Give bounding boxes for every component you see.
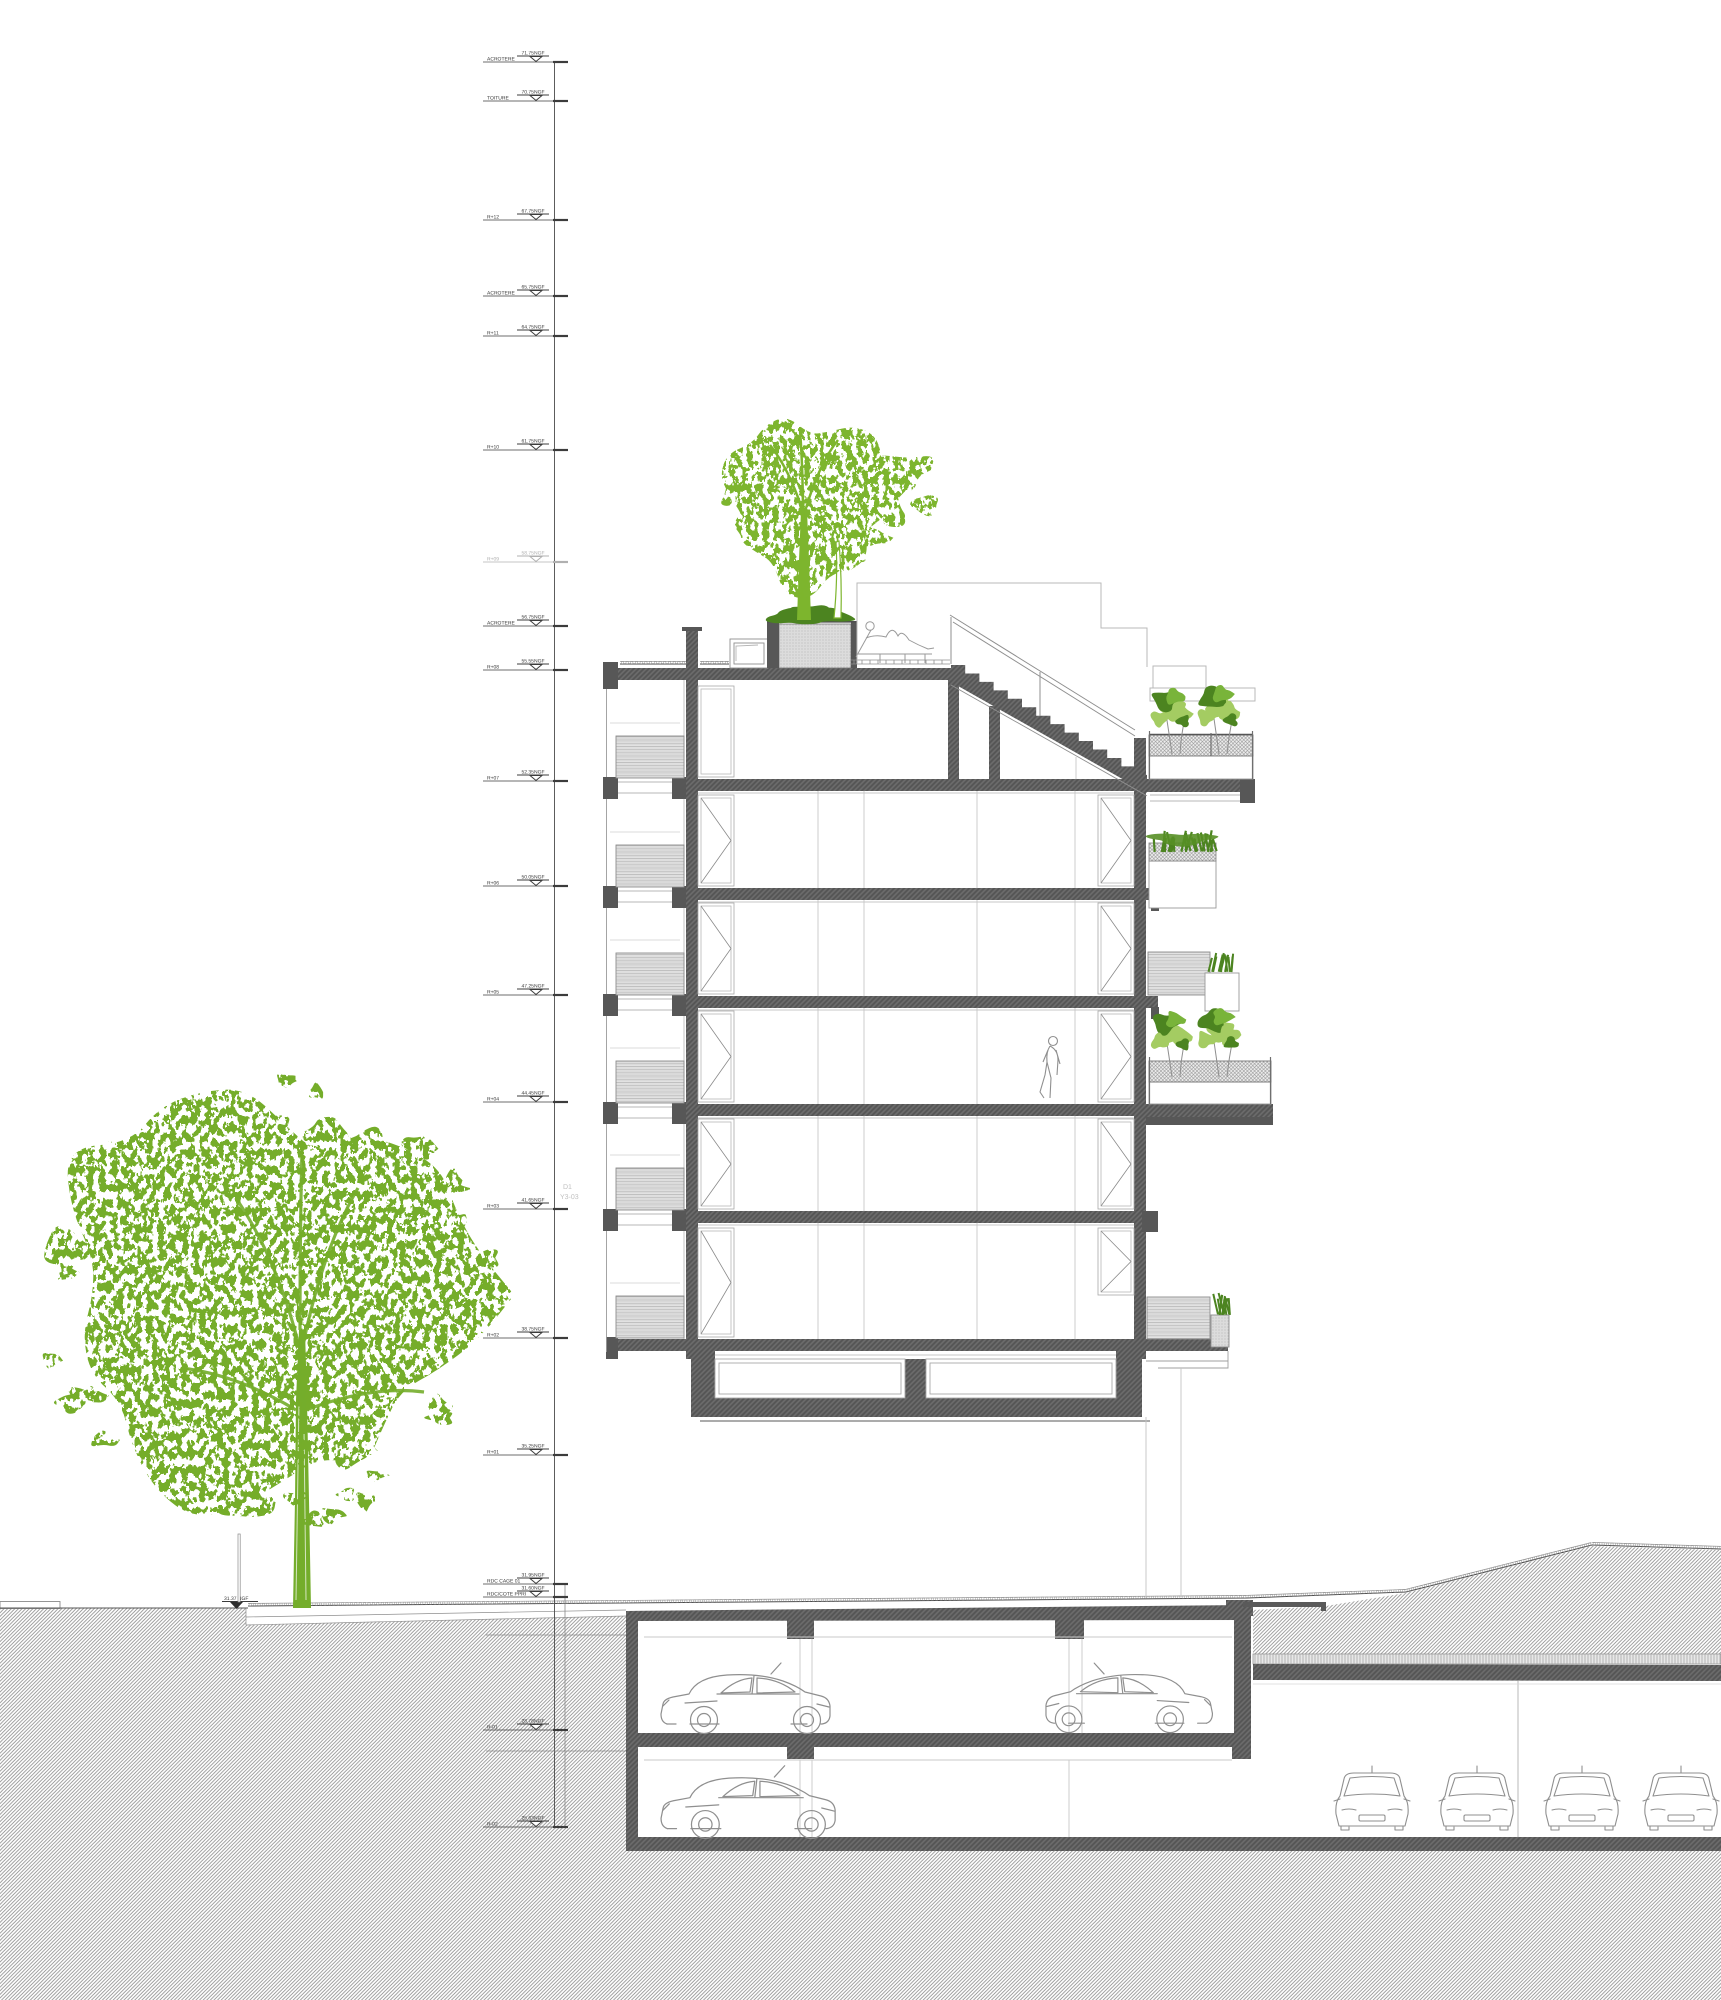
svg-text:R+06: R+06 — [487, 881, 499, 887]
svg-text:RDC CAGE 01: RDC CAGE 01 — [487, 1579, 521, 1585]
svg-text:R+09: R+09 — [487, 557, 499, 563]
svg-text:47.25NGF: 47.25NGF — [521, 984, 544, 990]
svg-text:R+01: R+01 — [487, 1450, 499, 1456]
svg-text:R-01: R-01 — [487, 1725, 498, 1731]
svg-text:R-02: R-02 — [487, 1822, 498, 1828]
svg-text:67.75NGF: 67.75NGF — [521, 209, 544, 215]
svg-text:ACROTERE: ACROTERE — [487, 57, 515, 63]
svg-text:71.75NGF: 71.75NGF — [521, 51, 544, 57]
svg-text:61.75NGF: 61.75NGF — [521, 439, 544, 445]
svg-text:RDC/COTE PPRI: RDC/COTE PPRI — [487, 1592, 526, 1598]
svg-text:R+05: R+05 — [487, 990, 499, 996]
svg-text:R+12: R+12 — [487, 215, 499, 221]
svg-text:R+10: R+10 — [487, 445, 499, 451]
svg-text:44.45NGF: 44.45NGF — [521, 1091, 544, 1097]
svg-text:31.60NGF: 31.60NGF — [521, 1586, 544, 1592]
svg-text:R+03: R+03 — [487, 1204, 499, 1210]
svg-text:R+02: R+02 — [487, 1333, 499, 1339]
svg-text:56.75NGF: 56.75NGF — [521, 615, 544, 621]
svg-text:38.75NGF: 38.75NGF — [521, 1327, 544, 1333]
svg-text:R+11: R+11 — [487, 331, 499, 337]
svg-text:50.05NGF: 50.05NGF — [521, 875, 544, 881]
svg-text:52.35NGF: 52.35NGF — [521, 770, 544, 776]
svg-text:R+07: R+07 — [487, 776, 499, 782]
svg-text:64.75NGF: 64.75NGF — [521, 325, 544, 331]
svg-text:28.78NGF: 28.78NGF — [521, 1719, 544, 1725]
svg-text:41.65NGF: 41.65NGF — [521, 1198, 544, 1204]
svg-text:Y3-03: Y3-03 — [560, 1194, 579, 1201]
svg-text:ACROTERE: ACROTERE — [487, 621, 515, 627]
svg-text:R+08: R+08 — [487, 665, 499, 671]
svg-text:D1: D1 — [563, 1184, 572, 1191]
svg-text:35.25NGF: 35.25NGF — [521, 1444, 544, 1450]
svg-text:R+04: R+04 — [487, 1097, 499, 1103]
svg-text:70.75NGF: 70.75NGF — [521, 90, 544, 96]
svg-text:65.75NGF: 65.75NGF — [521, 285, 544, 291]
svg-text:TOITURE: TOITURE — [487, 96, 510, 102]
svg-text:ACROTERE: ACROTERE — [487, 291, 515, 297]
svg-text:58.75NGF: 58.75NGF — [521, 551, 544, 557]
svg-text:31.95NGF: 31.95NGF — [521, 1573, 544, 1579]
svg-text:25.63NGF: 25.63NGF — [521, 1816, 544, 1822]
svg-text:55.55NGF: 55.55NGF — [521, 659, 544, 665]
